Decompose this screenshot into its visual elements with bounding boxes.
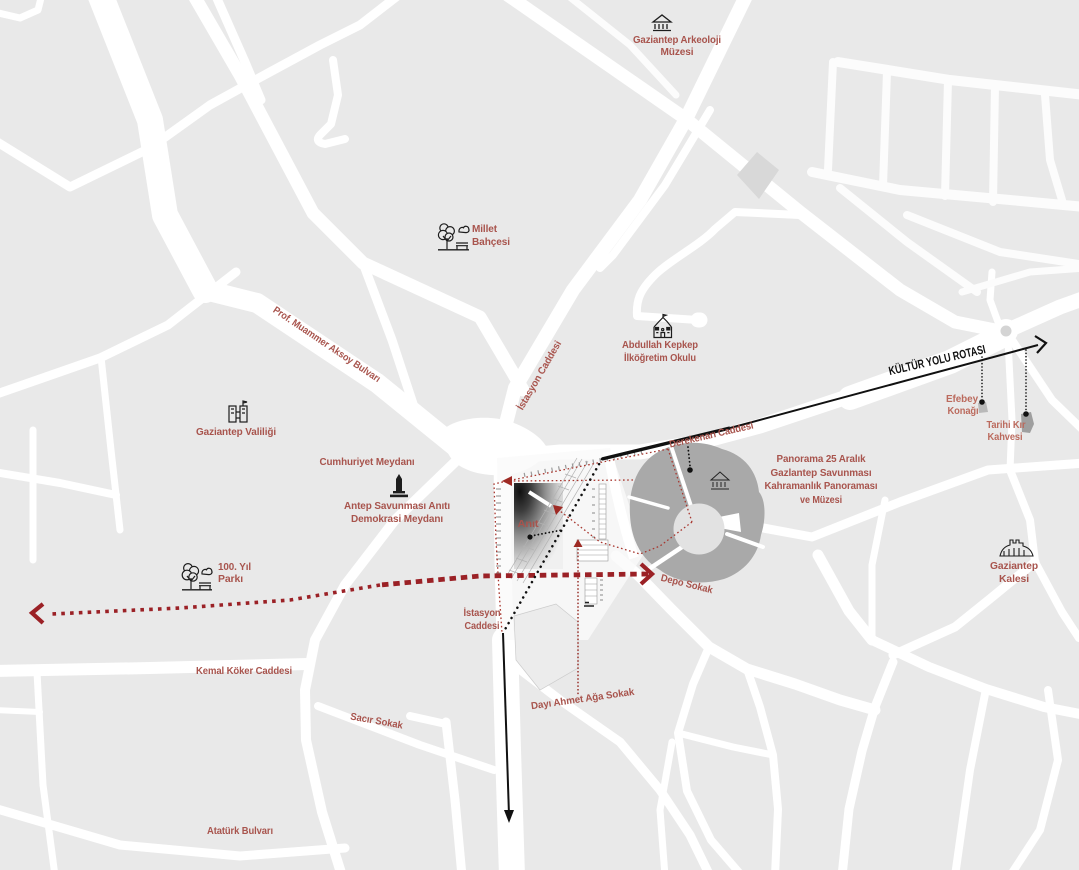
svg-text:100. Yıl: 100. Yıl	[218, 562, 251, 573]
svg-text:Tarihi Kır: Tarihi Kır	[987, 420, 1026, 431]
svg-text:Müzesi: Müzesi	[661, 47, 694, 58]
svg-text:Kemal Köker Caddesi: Kemal Köker Caddesi	[196, 666, 292, 677]
svg-text:İstasyon: İstasyon	[464, 606, 501, 619]
svg-text:Panorama 25 Aralık: Panorama 25 Aralık	[777, 454, 867, 465]
svg-text:Millet: Millet	[472, 224, 498, 235]
svg-text:Kahvesi: Kahvesi	[988, 432, 1023, 443]
svg-text:Kalesi: Kalesi	[999, 574, 1029, 585]
svg-text:Konağı: Konağı	[948, 406, 979, 417]
svg-text:ve Müzesi: ve Müzesi	[800, 495, 842, 506]
svg-text:Gaziantep Valiliği: Gaziantep Valiliği	[196, 427, 276, 438]
svg-text:Gaziantep Arkeoloji: Gaziantep Arkeoloji	[633, 35, 721, 46]
svg-text:Bahçesi: Bahçesi	[472, 237, 510, 248]
svg-text:Gaziantep: Gaziantep	[990, 561, 1038, 572]
svg-text:Efebey: Efebey	[946, 394, 979, 405]
svg-text:Abdullah Kepkep: Abdullah Kepkep	[622, 340, 698, 351]
svg-text:Caddesi: Caddesi	[465, 621, 500, 632]
svg-text:İlköğretim Okulu: İlköğretim Okulu	[624, 351, 696, 364]
svg-text:Anıt: Anıt	[518, 519, 540, 530]
svg-text:Cumhuriyet Meydanı: Cumhuriyet Meydanı	[320, 457, 415, 468]
svg-text:Kahramanlık Panoraması: Kahramanlık Panoraması	[765, 481, 878, 492]
svg-text:Atatürk Bulvarı: Atatürk Bulvarı	[207, 826, 273, 837]
svg-text:Demokrasi Meydanı: Demokrasi Meydanı	[351, 514, 443, 525]
svg-text:Parkı: Parkı	[218, 574, 243, 585]
svg-text:Antep Savunması Anıtı: Antep Savunması Anıtı	[344, 501, 450, 512]
svg-text:Gazlantep Savunması: Gazlantep Savunması	[771, 468, 872, 479]
